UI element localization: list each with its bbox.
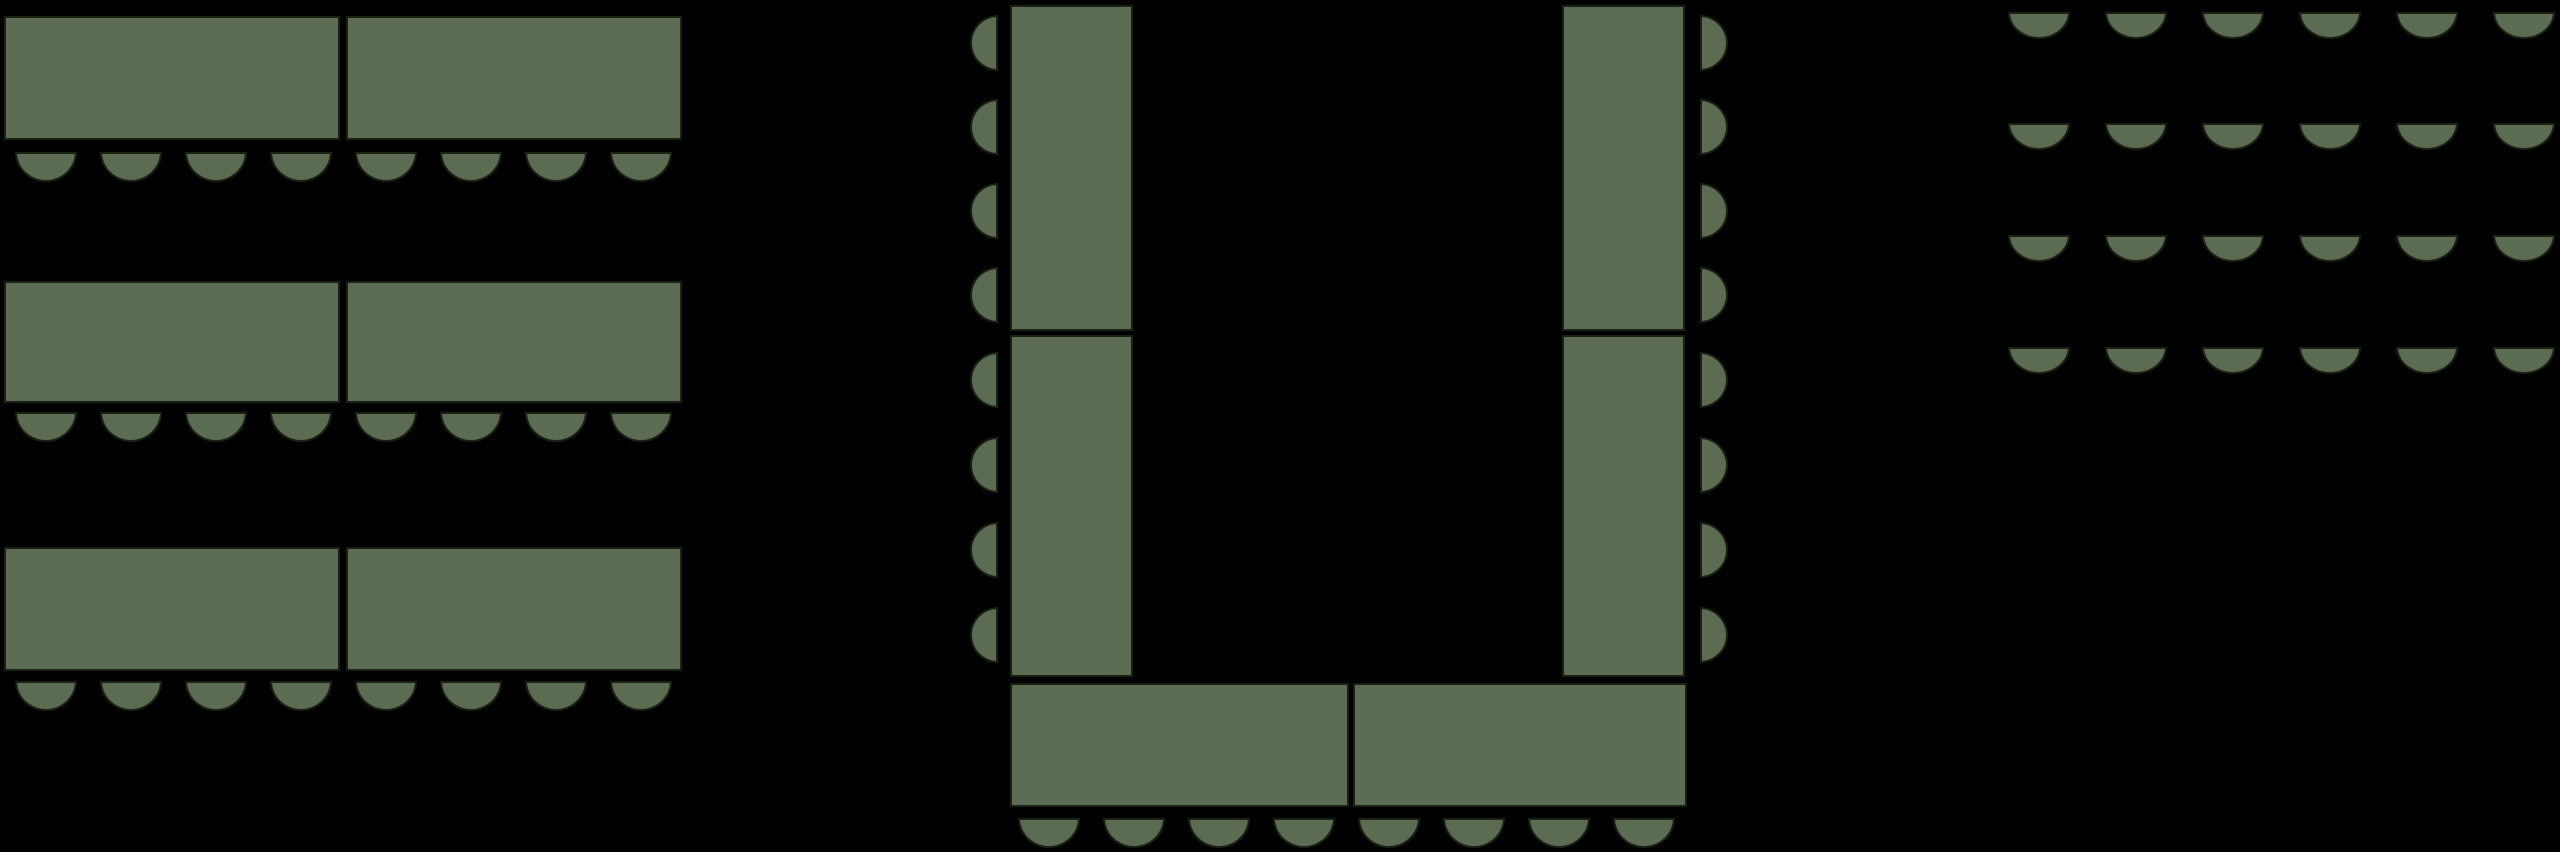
- seat: [2493, 123, 2555, 150]
- seat: [2008, 347, 2070, 374]
- seating-canvas: [0, 0, 2560, 852]
- seat: [2299, 123, 2361, 150]
- seat: [2008, 12, 2070, 39]
- seat: [2202, 235, 2264, 262]
- seat: [2105, 123, 2167, 150]
- seat: [2202, 12, 2264, 39]
- seat: [2396, 12, 2458, 39]
- seat: [2396, 235, 2458, 262]
- seat: [2493, 12, 2555, 39]
- seat: [2008, 123, 2070, 150]
- seat: [2105, 12, 2167, 39]
- seat: [2396, 123, 2458, 150]
- seat: [2299, 12, 2361, 39]
- theater-section[interactable]: [0, 0, 2560, 852]
- seat: [2105, 347, 2167, 374]
- seat: [2493, 347, 2555, 374]
- seat: [2396, 347, 2458, 374]
- seat: [2299, 235, 2361, 262]
- seat: [2493, 235, 2555, 262]
- seat: [2008, 235, 2070, 262]
- seat: [2202, 347, 2264, 374]
- seat: [2299, 347, 2361, 374]
- seat: [2105, 235, 2167, 262]
- seat: [2202, 123, 2264, 150]
